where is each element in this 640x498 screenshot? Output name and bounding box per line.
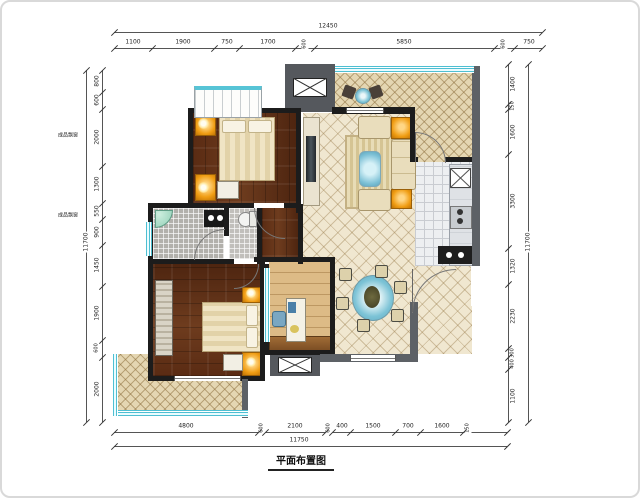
window: [145, 222, 152, 256]
dining-centerpiece: [364, 286, 380, 308]
side-table: [223, 354, 243, 371]
dim-line-bottom-total: [114, 446, 507, 447]
dim-label: 1300: [94, 175, 101, 192]
wardrobe: [155, 280, 173, 356]
cabinet-knob: [446, 252, 452, 258]
dim-label: 1700: [259, 39, 276, 46]
dim-line-top: [114, 48, 542, 49]
dim-label: 1500: [364, 423, 381, 430]
tv-icon: [306, 136, 316, 182]
window: [346, 108, 384, 113]
dim-tick: [525, 419, 532, 426]
bay-window-note: 成品飘窗: [58, 132, 78, 139]
dim-label: 750: [522, 39, 535, 46]
dining-chair: [394, 281, 407, 294]
dim-label: 1100: [124, 39, 141, 46]
dim-tick: [539, 29, 546, 36]
desk-monitor: [288, 302, 296, 313]
dim-label: 1900: [94, 304, 101, 321]
base-cabinet: [438, 246, 472, 264]
dim-label: 1450: [94, 256, 101, 273]
desk-item: [290, 325, 299, 333]
side-table-orange: [391, 117, 412, 139]
dim-label: 11700: [83, 231, 90, 252]
armchair: [358, 189, 391, 211]
wall: [148, 203, 254, 208]
window: [264, 268, 270, 342]
dining-chair: [391, 309, 404, 322]
dim-tick: [505, 419, 512, 426]
desk-chair: [272, 311, 286, 327]
dim-tick: [83, 419, 90, 426]
sink-icon: [450, 168, 471, 188]
balcony-glazing: [335, 66, 474, 73]
dim-label: 1900: [174, 39, 191, 46]
pillow: [246, 305, 258, 326]
dim-label: 11750: [288, 437, 309, 444]
balcony-table: [355, 88, 371, 104]
wall: [298, 204, 303, 264]
dim-label: 900: [94, 225, 101, 238]
dim-label: 600: [302, 38, 309, 50]
door-leaf: [412, 269, 413, 312]
dining-chair: [375, 265, 388, 278]
dim-label: 3300: [510, 192, 517, 209]
lamp-icon: [198, 182, 209, 193]
dim-label: 400: [335, 423, 348, 430]
dim-label: 2230: [510, 307, 517, 324]
dim-label: 2000: [94, 380, 101, 397]
dim-label: 600: [501, 38, 508, 50]
pillow: [222, 120, 246, 133]
wall: [188, 108, 193, 208]
shaft-x-icon: [293, 78, 327, 97]
dim-label: 5850: [395, 39, 412, 46]
window: [350, 355, 396, 361]
dim-label: 11700: [525, 231, 532, 252]
dim-label: 12450: [317, 23, 338, 30]
wall: [296, 108, 301, 213]
dim-tick: [504, 443, 511, 450]
drawing-title: 平面布置图: [268, 452, 334, 471]
dim-label: 1400: [510, 75, 517, 92]
dim-label: 4800: [177, 423, 194, 430]
dim-label: 1600: [510, 123, 517, 140]
dim-label: 1600: [433, 423, 450, 430]
pillow: [246, 327, 258, 348]
dim-label: 1320: [510, 257, 517, 274]
bay-window: [194, 86, 262, 118]
entry-opening: [471, 266, 481, 306]
lamp-icon: [198, 118, 209, 129]
dim-line-bottom: [114, 432, 507, 433]
armchair: [358, 116, 391, 139]
dim-label: 1100: [510, 387, 517, 404]
pillow: [248, 120, 272, 133]
burner-dot: [457, 209, 463, 215]
balcony-glazing: [112, 410, 248, 417]
coffee-table: [359, 151, 381, 187]
cabinet-knob: [458, 252, 464, 258]
dining-chair: [339, 268, 352, 281]
dining-chair: [336, 297, 349, 310]
dim-tick: [99, 419, 106, 426]
basin-dot: [208, 215, 214, 221]
side-table: [217, 181, 239, 199]
window: [174, 376, 241, 381]
dim-label: 700: [401, 423, 414, 430]
floor-plan-sheet: 12450 1100 1900 750 1700 600 5850 600 75…: [0, 0, 640, 498]
dim-tick: [539, 45, 546, 52]
burner-dot: [457, 218, 463, 224]
wall: [330, 257, 335, 355]
shaft-x-icon: [278, 357, 312, 373]
door-leaf: [415, 132, 416, 162]
dim-label: 750: [220, 39, 233, 46]
lamp-icon: [246, 288, 256, 298]
wall: [254, 257, 335, 262]
balcony-glazing: [112, 354, 118, 416]
dim-label: 2000: [94, 128, 101, 145]
basin-dot: [217, 215, 223, 221]
dim-label: 800: [94, 74, 101, 87]
side-table-orange: [391, 189, 412, 209]
dining-chair: [357, 319, 370, 332]
wall: [445, 157, 472, 162]
lamp-icon: [246, 357, 256, 367]
bay-window-note: 成品飘窗: [58, 212, 78, 219]
dim-line-top-total: [114, 32, 542, 33]
dim-tick: [504, 429, 511, 436]
dim-label: 2100: [286, 423, 303, 430]
